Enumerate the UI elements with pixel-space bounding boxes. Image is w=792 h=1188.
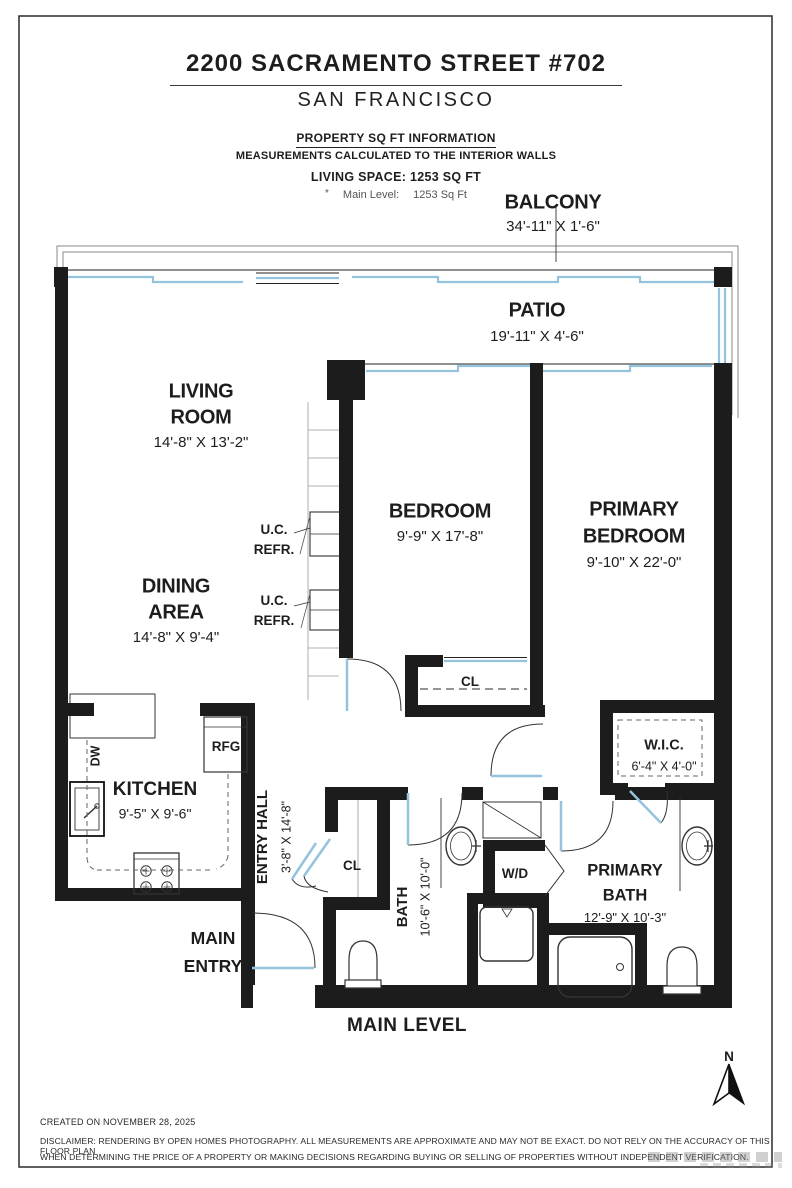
compass-north-label: N [724, 1050, 734, 1064]
floor-plan-page: { "header": { "title": "2200 SACRAMENTO … [0, 0, 792, 1188]
uc-refr-units [294, 512, 340, 630]
main-level-sqft-note: *Main Level:1253 Sq Ft [0, 188, 792, 201]
stove [134, 853, 179, 894]
balcony-railing [57, 246, 738, 418]
uc-refr-counter [308, 402, 339, 700]
room-label-patio: PATIO [509, 301, 566, 322]
created-date: CREATED ON NOVEMBER 28, 2025 [40, 1117, 195, 1127]
main-entry-label-1: MAIN [191, 929, 236, 947]
main-entry-label-2: ENTRY [184, 957, 243, 975]
kitchen-sink [70, 782, 104, 836]
room-label-bedroom: BEDROOM [389, 502, 491, 523]
room-label-primary-bedroom-1: PRIMARY [589, 500, 678, 521]
window-band-frames [68, 270, 714, 658]
room-dims-patio: 19'-11" X 4'-6" [490, 329, 584, 345]
sqft-section-title: PROPERTY SQ FT INFORMATION [0, 129, 792, 148]
room-label-primary-bath-2: BATH [603, 887, 648, 904]
shower [480, 907, 533, 961]
closet-label-hall: CL [343, 859, 361, 873]
room-label-entry-hall: ENTRY HALL [255, 790, 271, 884]
disclaimer-line-2: WHEN DETERMINING THE PRICE OF A PROPERTY… [40, 1152, 749, 1162]
room-dims-balcony: 34'-11" X 1'-6" [506, 219, 600, 235]
note-value: 1253 Sq Ft [413, 189, 467, 201]
washer-dryer-label: W/D [502, 867, 528, 881]
room-dims-primary-bedroom: 9'-10" X 22'-0" [587, 555, 682, 571]
watermark [648, 1152, 782, 1162]
primary-toilet [663, 947, 701, 994]
room-label-primary-bedroom-2: BEDROOM [583, 527, 685, 548]
room-label-dining-area-2: AREA [148, 603, 203, 624]
uc-refr-label-2b: REFR. [254, 614, 295, 628]
measurement-note: MEASUREMENTS CALCULATED TO THE INTERIOR … [0, 150, 792, 162]
room-label-living-room-2: ROOM [170, 408, 231, 429]
page-title: 2200 SACRAMENTO STREET #702 [0, 50, 792, 86]
uc-refr-label-2a: U.C. [261, 594, 288, 608]
watermark-row2 [700, 1163, 782, 1168]
note-bullet: * [325, 188, 329, 199]
room-label-bath: BATH [395, 887, 411, 928]
uc-refr-label-1b: REFR. [254, 543, 295, 557]
room-label-living-room-1: LIVING [169, 382, 234, 403]
note-label: Main Level: [343, 189, 399, 201]
room-dims-entry-hall: 3'-8" X 14'-8" [280, 801, 293, 873]
room-dims-bath: 10'-6" X 10'-0" [419, 858, 432, 937]
room-dims-bedroom: 9'-9" X 17'-8" [397, 529, 483, 545]
compass-icon [714, 1064, 744, 1104]
level-title: MAIN LEVEL [347, 1016, 467, 1036]
bath-vanity-sink [441, 798, 481, 888]
room-label-kitchen: KITCHEN [113, 780, 197, 800]
room-label-balcony: BALCONY [505, 193, 602, 214]
dishwasher-label: DW [89, 746, 102, 767]
room-dims-kitchen: 9'-5" X 9'-6" [119, 807, 192, 822]
room-dims-wic: 6'-4" X 4'-0" [631, 760, 696, 773]
bath-toilet [345, 941, 381, 988]
closet-label-bedroom: CL [461, 675, 479, 689]
room-dims-primary-bath: 12'-9" X 10'-3" [584, 911, 666, 925]
room-label-wic: W.I.C. [644, 738, 683, 753]
room-label-dining-area-1: DINING [142, 577, 210, 598]
primary-vanity-sink [680, 798, 713, 891]
room-label-primary-bath-1: PRIMARY [587, 862, 662, 879]
room-dims-dining-area: 14'-8" X 9'-4" [133, 630, 219, 646]
page-subtitle-city: SAN FRANCISCO [0, 89, 792, 112]
room-dims-living-room: 14'-8" X 13'-2" [154, 435, 249, 451]
refrigerator-label: RFG [212, 740, 241, 754]
living-space-total: LIVING SPACE: 1253 SQ FT [0, 170, 792, 184]
uc-refr-label-1a: U.C. [261, 523, 288, 537]
